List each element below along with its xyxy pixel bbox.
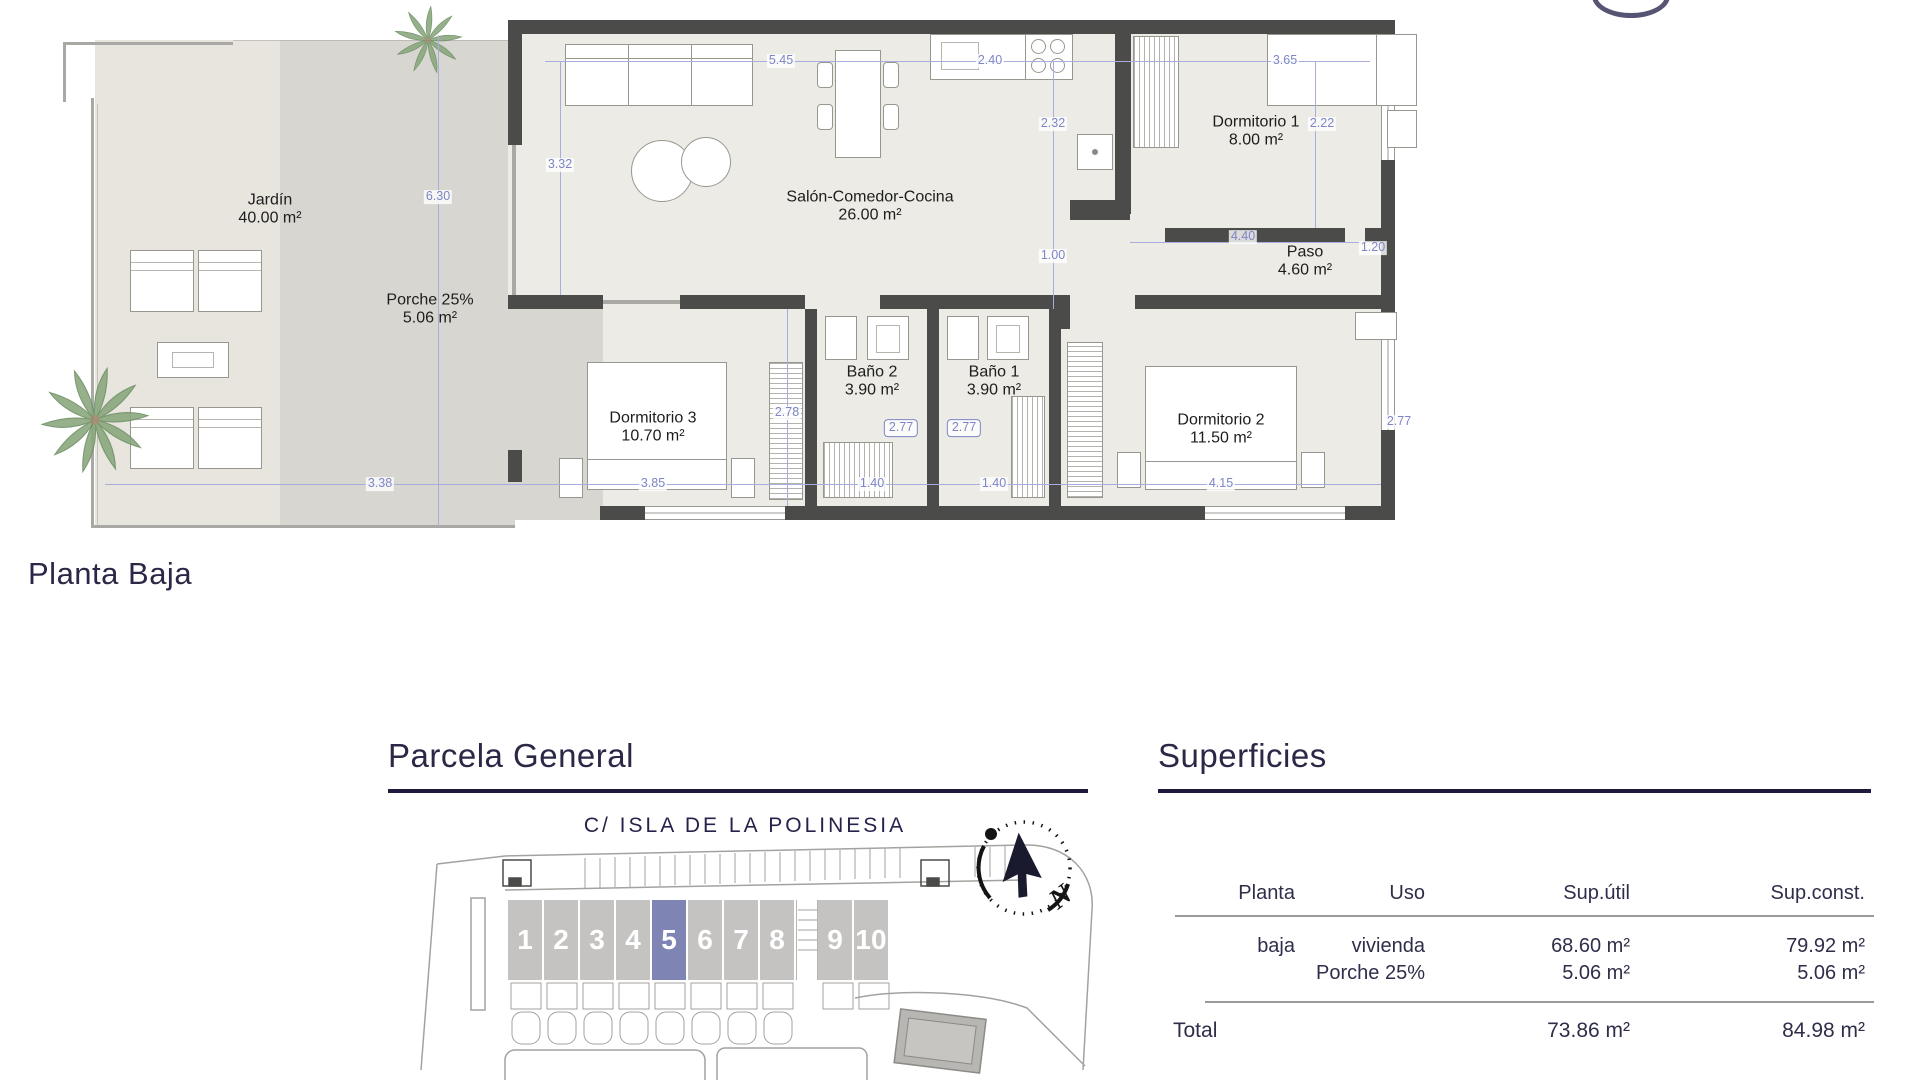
parcela-unit-2: 2 (544, 900, 578, 980)
toilet-bano2 (825, 316, 857, 360)
dim-label: 2.77 (947, 419, 981, 437)
dim-line (438, 35, 439, 527)
room-area: 5.06 m² (386, 310, 473, 328)
unit-number: 10 (855, 924, 886, 956)
col-header-planta: Planta (1155, 880, 1295, 915)
dim-label: 2.32 (1039, 117, 1067, 131)
table-rule (1175, 915, 1874, 917)
window-dorm2-south (1205, 506, 1345, 520)
parcela-unit-5-highlighted: 5 (652, 900, 686, 980)
bed-dorm1 (1267, 34, 1417, 106)
garden-table (157, 342, 229, 378)
room-name: Jardín (238, 192, 301, 210)
dim-label: 4.15 (1207, 477, 1235, 491)
plan-title: Planta Baja (28, 556, 192, 592)
wall-bano2-bano1 (927, 309, 939, 506)
wall-dorm2-top (1135, 295, 1381, 309)
cell-planta: baja (1155, 933, 1295, 960)
cell-empty (1295, 1017, 1425, 1045)
col-header-uso: Uso (1295, 880, 1425, 915)
col-header-sup-util: Sup.útil (1425, 880, 1630, 915)
glass-left (512, 145, 516, 295)
parcela-unit-8: 8 (760, 900, 794, 980)
nightstand (1301, 452, 1325, 488)
dim-line (105, 484, 1381, 485)
nightstand (1117, 452, 1141, 488)
table-row: baja vivienda 68.60 m² 79.92 m² (1155, 933, 1880, 960)
dim-label: 3.38 (366, 477, 394, 491)
dining-chair (817, 62, 833, 88)
wall-porch-top (508, 295, 603, 309)
dining-chair (883, 62, 899, 88)
room-label-dormitorio2: Dormitorio 2 11.50 m² (1177, 412, 1264, 449)
window-dorm3 (645, 506, 785, 520)
wall-bano1-dorm2 (1049, 309, 1061, 506)
table-total-row: Total 73.86 m² 84.98 m² (1155, 1017, 1880, 1045)
room-area: 11.50 m² (1177, 430, 1264, 448)
palm-tree-icon (390, 2, 466, 78)
superficies-heading: Superficies (1158, 737, 1327, 775)
room-area: 4.60 m² (1278, 262, 1332, 280)
unit-number: 3 (589, 924, 605, 956)
dim-line (1053, 61, 1054, 309)
room-area: 40.00 m² (238, 210, 301, 228)
room-name: Dormitorio 3 (609, 410, 696, 428)
dim-label: 1.40 (858, 477, 886, 491)
room-label-dormitorio3: Dormitorio 3 10.70 m² (609, 410, 696, 447)
dining-chair (883, 104, 899, 130)
dim-label: 2.40 (976, 54, 1004, 68)
cell-total-sup-const: 84.98 m² (1630, 1017, 1865, 1045)
room-label-paso: Paso 4.60 m² (1278, 244, 1332, 281)
dim-line (545, 61, 1370, 62)
wall-top (508, 20, 1395, 34)
dim-label: 6.30 (424, 190, 452, 204)
unit-number: 6 (697, 924, 713, 956)
sink-bano2 (867, 316, 909, 360)
wall-banos-top (880, 295, 1070, 309)
dim-label: 5.45 (767, 54, 795, 68)
floor-plan: 5.45 2.40 3.65 3.32 2.32 2.22 6.30 1.00 … (25, 10, 1445, 545)
dining-chair (817, 104, 833, 130)
parcela-unit-6: 6 (688, 900, 722, 980)
page: 5.45 2.40 3.65 3.32 2.32 2.22 6.30 1.00 … (0, 0, 1920, 1080)
cell-uso: Porche 25% (1295, 960, 1425, 987)
room-name: Baño 2 (845, 364, 899, 382)
unit-number: 5 (661, 924, 677, 956)
room-label-bano2: Baño 2 3.90 m² (845, 364, 899, 401)
sun-lounger (198, 250, 262, 312)
dim-line (1315, 61, 1316, 228)
room-name: Dormitorio 2 (1177, 412, 1264, 430)
garden-floor-strip (280, 40, 515, 527)
wall-left-upper (508, 20, 522, 145)
nightstand (1387, 110, 1417, 148)
dim-label: 1.00 (1039, 249, 1067, 263)
garden-table-top (172, 352, 214, 368)
room-area: 10.70 m² (609, 428, 696, 446)
cell-total-sup-util: 73.86 m² (1425, 1017, 1630, 1045)
cell-sup-util: 5.06 m² (1425, 960, 1630, 987)
oven-knob (1092, 149, 1098, 155)
dim-label: 1.20 (1359, 241, 1387, 255)
room-area: 8.00 m² (1212, 132, 1299, 150)
dim-label: 2.77 (884, 419, 918, 437)
table-rule (1205, 1001, 1874, 1003)
unit-number: 8 (769, 924, 785, 956)
cell-total-label: Total (1155, 1017, 1295, 1045)
sun-lounger (198, 407, 262, 469)
wall-porch-post (508, 450, 522, 482)
cell-planta (1155, 960, 1295, 987)
garden-boundary (91, 525, 515, 528)
room-name: Paso (1278, 244, 1332, 262)
unit-number: 1 (517, 924, 533, 956)
toilet-bano1 (947, 316, 979, 360)
parcela-unit-1: 1 (508, 900, 542, 980)
hob-burner (1050, 39, 1065, 54)
compass-north-label: N (1042, 878, 1079, 917)
sink-bano1 (987, 316, 1029, 360)
dim-label: 3.85 (639, 477, 667, 491)
logo-fragment (1592, 0, 1670, 18)
cell-sup-const: 79.92 m² (1630, 933, 1865, 960)
dim-label: 3.32 (546, 158, 574, 172)
parcela-unit-10: 10 (854, 900, 888, 980)
nightstand (731, 458, 755, 498)
parcela-heading-underline (388, 789, 1088, 793)
wardrobe-dorm3 (769, 362, 803, 500)
sink-basin (996, 325, 1020, 353)
dim-label: 2.78 (773, 406, 801, 420)
room-name: Dormitorio 1 (1212, 114, 1299, 132)
cell-uso: vivienda (1295, 933, 1425, 960)
unit-number: 9 (827, 924, 843, 956)
wall-dorm3-top (680, 295, 805, 309)
palm-tree-icon (40, 365, 150, 475)
dim-label: 2.77 (1385, 415, 1413, 429)
room-area: 3.90 m² (845, 382, 899, 400)
table-row: Porche 25% 5.06 m² 5.06 m² (1155, 960, 1880, 987)
room-label-porche: Porche 25% 5.06 m² (386, 292, 473, 329)
nightstand (559, 458, 583, 498)
glass-dorm3 (603, 300, 680, 304)
cell-sup-const: 5.06 m² (1630, 960, 1865, 987)
col-header-sup-const: Sup.const. (1630, 880, 1865, 915)
shower-bano1 (1011, 396, 1045, 498)
kitchen-sink (941, 42, 979, 70)
room-name: Salón-Comedor-Cocina (786, 189, 953, 207)
parcela-unit-7: 7 (724, 900, 758, 980)
dim-label: 1.40 (980, 477, 1008, 491)
wall-dorm3-bano2 (805, 309, 817, 506)
superficies-table: Planta Uso Sup.útil Sup.const. baja vivi… (1155, 880, 1880, 1045)
room-label-salon: Salón-Comedor-Cocina 26.00 m² (786, 189, 953, 226)
dim-line (560, 61, 561, 295)
garden-boundary (63, 42, 66, 102)
parcela-unit-4: 4 (616, 900, 650, 980)
sink-basin (876, 325, 900, 353)
room-label-dormitorio1: Dormitorio 1 8.00 m² (1212, 114, 1299, 151)
compass-icon: N (962, 806, 1086, 930)
dim-label: 2.22 (1308, 117, 1336, 131)
table-header-row: Planta Uso Sup.útil Sup.const. (1155, 880, 1880, 915)
parcela-unit-9: 9 (818, 900, 852, 980)
dining-table (835, 50, 881, 158)
room-area: 26.00 m² (786, 207, 953, 225)
kitchen-counter-dark (1070, 200, 1130, 220)
dim-label: 3.65 (1271, 54, 1299, 68)
stairwell-gap (796, 900, 818, 980)
room-label-jardin: Jardín 40.00 m² (238, 192, 301, 229)
room-label-bano1: Baño 1 3.90 m² (967, 364, 1021, 401)
dim-label: 4.40 (1229, 230, 1257, 244)
wardrobe-dorm2 (1067, 342, 1103, 498)
unit-number: 7 (733, 924, 749, 956)
coffee-table (681, 137, 731, 187)
room-area: 3.90 m² (967, 382, 1021, 400)
room-name: Porche 25% (386, 292, 473, 310)
closet-paso (1355, 312, 1397, 340)
unit-number: 4 (625, 924, 641, 956)
garden-boundary (63, 42, 233, 45)
parcela-heading: Parcela General (388, 737, 634, 775)
unit-row: 1 2 3 4 5 6 7 8 9 10 (508, 900, 890, 980)
room-name: Baño 1 (967, 364, 1021, 382)
garden-boundary (233, 40, 515, 41)
parcela-unit-3: 3 (580, 900, 614, 980)
sun-lounger (130, 250, 194, 312)
unit-number: 2 (553, 924, 569, 956)
sofa (565, 44, 753, 106)
cell-sup-util: 68.60 m² (1425, 933, 1630, 960)
wardrobe-dorm1 (1133, 36, 1179, 148)
superficies-heading-underline (1158, 789, 1871, 793)
hob-burner (1031, 39, 1046, 54)
